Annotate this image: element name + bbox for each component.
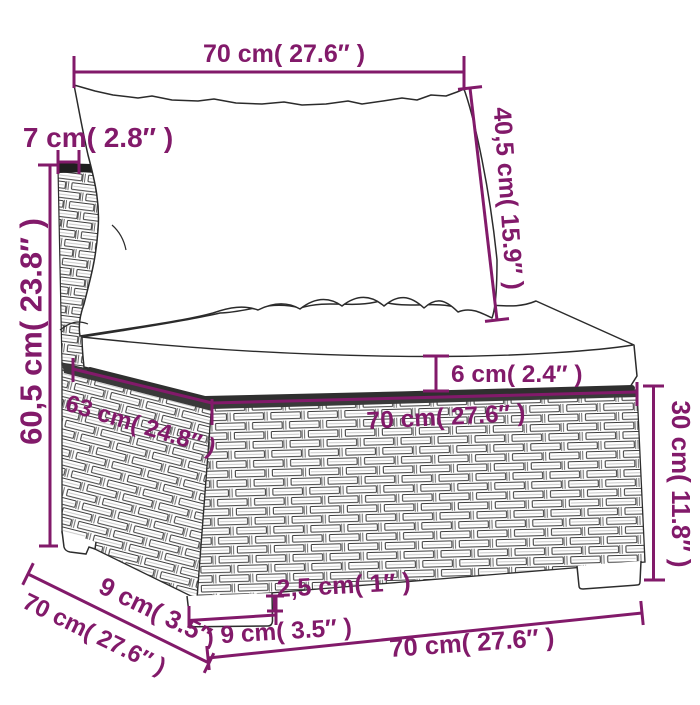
- svg-text:30 cm( 11.8″ ): 30 cm( 11.8″ ): [666, 400, 696, 567]
- svg-text:70 cm( 27.6″ ): 70 cm( 27.6″ ): [203, 40, 365, 68]
- svg-text:60,5 cm( 23.8″ ): 60,5 cm( 23.8″ ): [14, 218, 49, 445]
- svg-text:7 cm( 2.8″ ): 7 cm( 2.8″ ): [23, 122, 173, 153]
- svg-text:6 cm( 2.4″ ): 6 cm( 2.4″ ): [451, 361, 583, 388]
